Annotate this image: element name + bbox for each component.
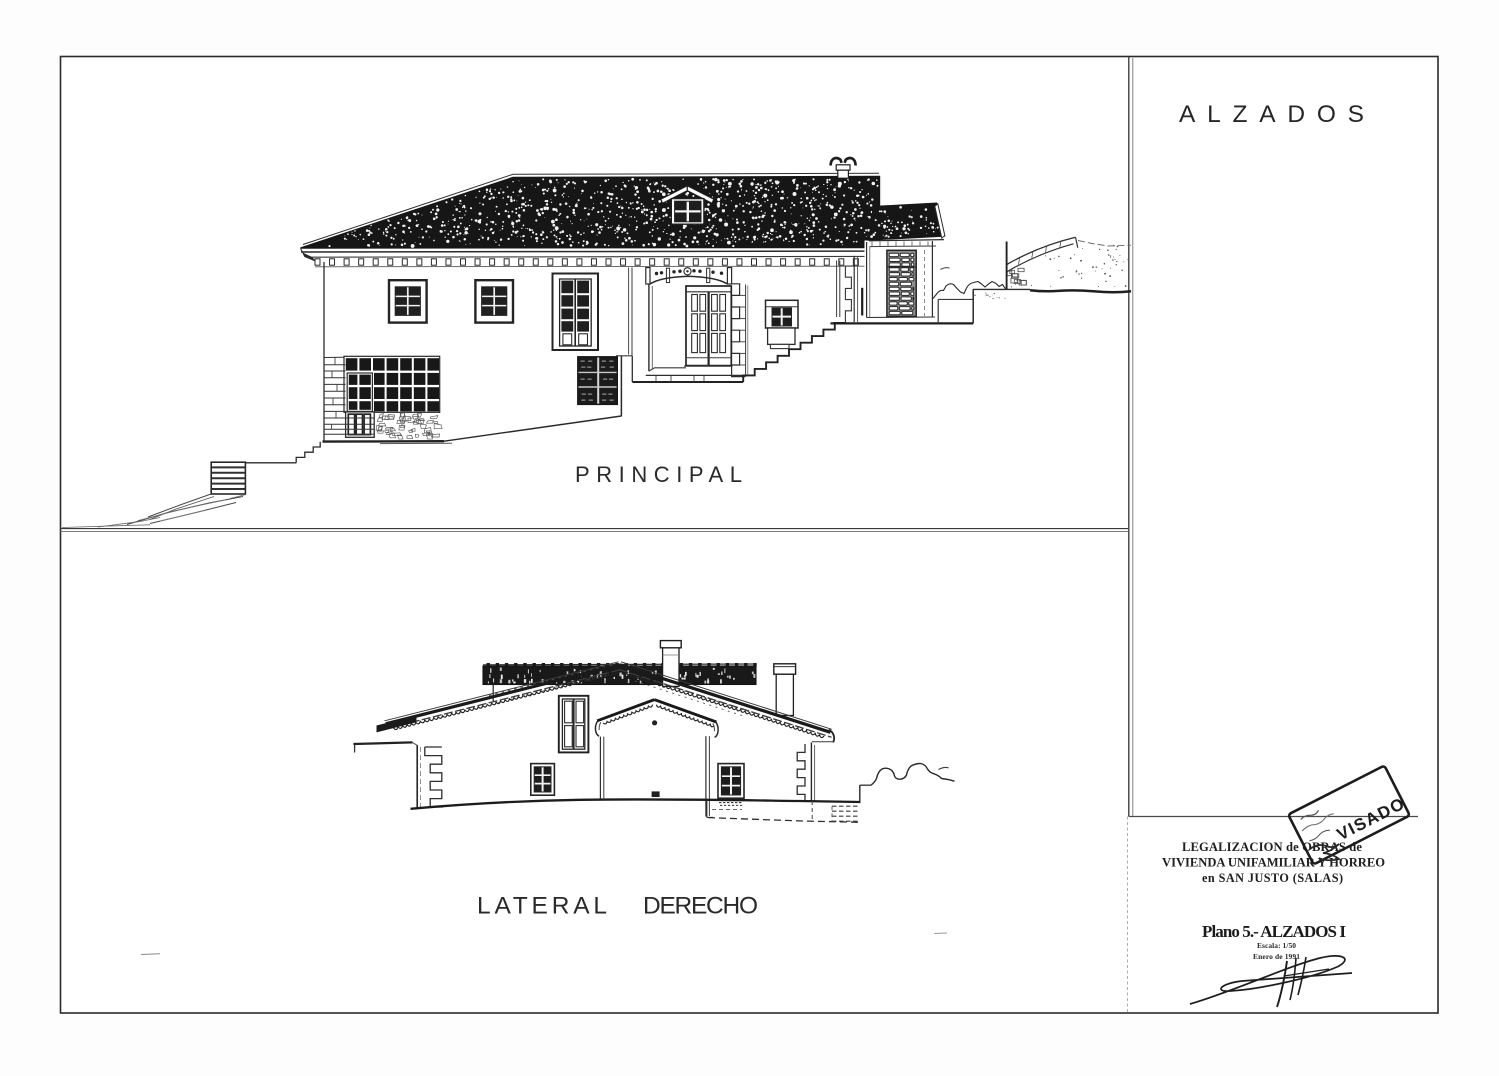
svg-text:Plano 5.- ALZADOS I: Plano 5.- ALZADOS I bbox=[1202, 922, 1346, 941]
svg-text:LATERAL: LATERAL bbox=[477, 893, 607, 920]
svg-text:DERECHO: DERECHO bbox=[643, 893, 758, 920]
svg-text:en SAN JUSTO (SALAS): en SAN JUSTO (SALAS) bbox=[1202, 871, 1343, 885]
svg-text:VIVIENDA UNIFAMILIAR Y HORREO: VIVIENDA UNIFAMILIAR Y HORREO bbox=[1162, 856, 1385, 870]
svg-text:Escala: 1/50: Escala: 1/50 bbox=[1257, 941, 1296, 950]
svg-text:Enero de 1991: Enero de 1991 bbox=[1253, 952, 1300, 961]
svg-text:PRINCIPAL: PRINCIPAL bbox=[575, 462, 742, 487]
